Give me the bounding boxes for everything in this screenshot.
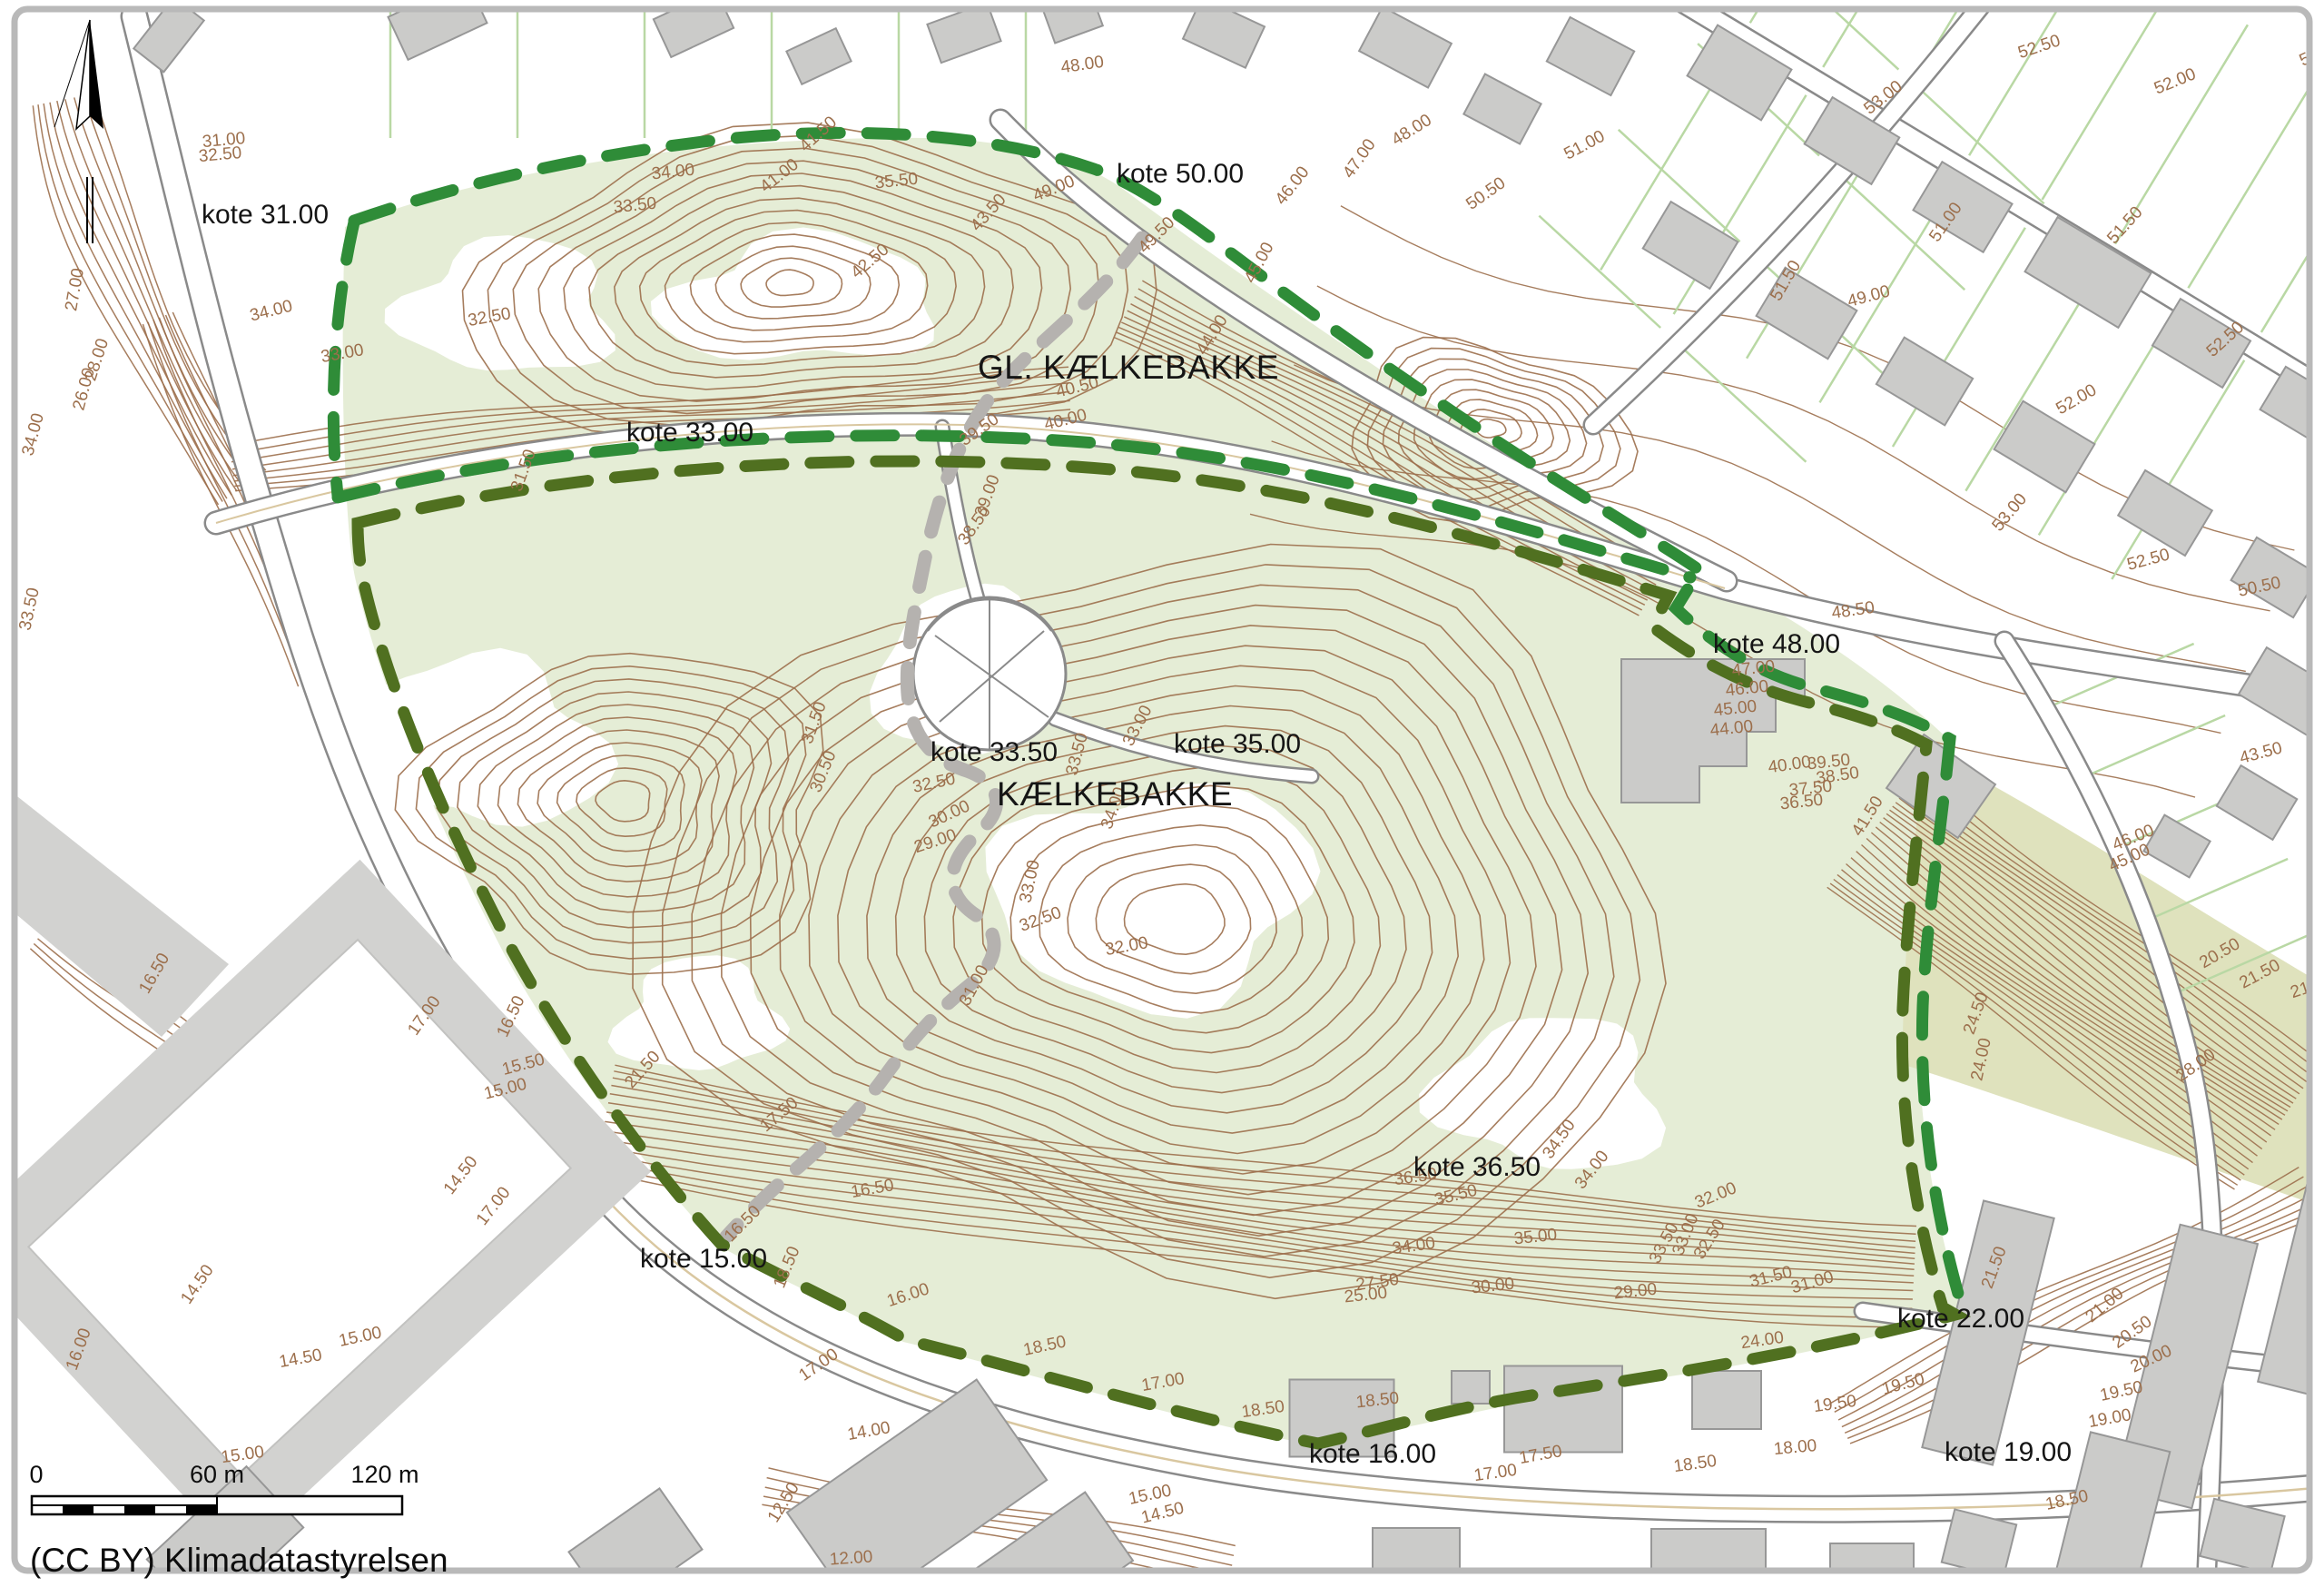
svg-text:51.00: 51.00	[1561, 127, 1608, 164]
svg-text:47.00: 47.00	[1339, 135, 1379, 182]
svg-text:49.00: 49.00	[1846, 281, 1892, 311]
kote-label-15-00: kote 15.00	[640, 1244, 767, 1275]
svg-text:52.00: 52.00	[2053, 380, 2100, 419]
svg-text:52.00: 52.00	[2152, 64, 2199, 98]
kote-label-33-00: kote 33.00	[626, 418, 753, 448]
svg-text:32.50: 32.50	[198, 143, 242, 166]
svg-text:14.00: 14.00	[846, 1418, 891, 1444]
svg-text:19.50: 19.50	[1880, 1369, 1926, 1399]
svg-text:26.00: 26.00	[69, 366, 99, 412]
svg-text:48.00: 48.00	[1388, 111, 1434, 150]
svg-text:51.50: 51.50	[2103, 203, 2146, 248]
scale-bar	[32, 1496, 402, 1514]
scale-tick-120: 120 m	[350, 1461, 419, 1489]
kote-label-50-00: kote 50.00	[1117, 159, 1244, 190]
place-label-kaelkebakke: KÆLKEBAKKE	[997, 775, 1233, 813]
svg-text:12.00: 12.00	[829, 1547, 873, 1569]
kote-label-16-00: kote 16.00	[1309, 1439, 1436, 1470]
svg-text:52.50: 52.50	[2125, 545, 2171, 575]
kote-label-35-00: kote 35.00	[1174, 729, 1301, 760]
svg-text:34.00: 34.00	[18, 411, 48, 458]
svg-text:43.50: 43.50	[2238, 738, 2284, 768]
svg-text:17.00: 17.00	[1472, 1461, 1518, 1485]
kote-label-22-00: kote 22.00	[1897, 1304, 2024, 1335]
kote-label-33-50: kote 33.50	[931, 737, 1058, 768]
svg-text:34.00: 34.00	[248, 297, 294, 326]
svg-text:53.00: 53.00	[1988, 490, 2031, 536]
kote-label-19-00: kote 19.00	[1945, 1437, 2072, 1468]
scale-tick-60: 60 m	[190, 1461, 244, 1489]
kote-label-36-50: kote 36.50	[1413, 1152, 1541, 1183]
kote-label-31-00: kote 31.00	[202, 200, 329, 231]
svg-text:19.00: 19.00	[2087, 1405, 2132, 1432]
svg-text:33.50: 33.50	[15, 586, 43, 632]
svg-text:18.50: 18.50	[1672, 1452, 1718, 1476]
svg-text:27.00: 27.00	[62, 267, 88, 312]
kote-label-48-00: kote 48.00	[1713, 629, 1840, 660]
attribution: (CC BY) Klimadatastyrelsen	[30, 1542, 448, 1580]
scale-tick-0: 0	[29, 1461, 43, 1489]
svg-text:48.00: 48.00	[1059, 53, 1105, 77]
roundabout-feature	[913, 597, 1066, 750]
place-label-gl-kaelkebakke: GL. KÆLKEBAKKE	[978, 349, 1279, 387]
svg-text:18.00: 18.00	[1773, 1436, 1817, 1459]
svg-text:46.00: 46.00	[1272, 163, 1314, 208]
svg-text:50.50: 50.50	[1462, 173, 1509, 213]
svg-text:52.50: 52.50	[2015, 31, 2063, 63]
map-stage: 48.0052.5052.0053.0051.0050.5049.0049.50…	[0, 0, 2324, 1587]
